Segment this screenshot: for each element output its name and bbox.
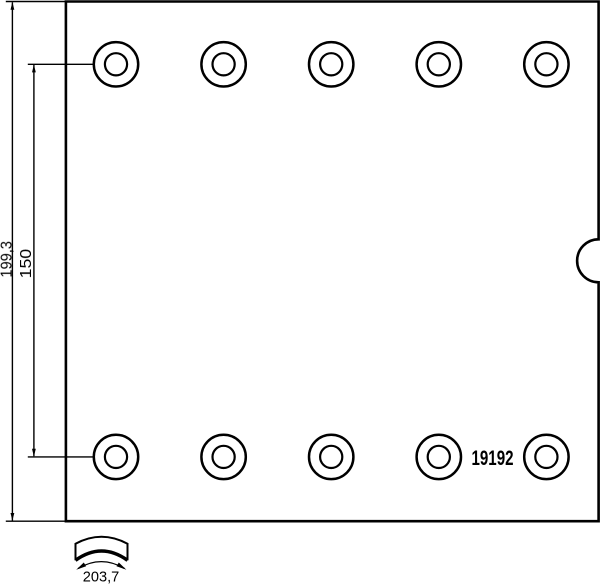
svg-text:199,3: 199,3 xyxy=(0,241,16,278)
svg-text:19192: 19192 xyxy=(472,447,514,470)
svg-text:150: 150 xyxy=(18,249,35,279)
svg-text:203,7: 203,7 xyxy=(83,569,120,584)
